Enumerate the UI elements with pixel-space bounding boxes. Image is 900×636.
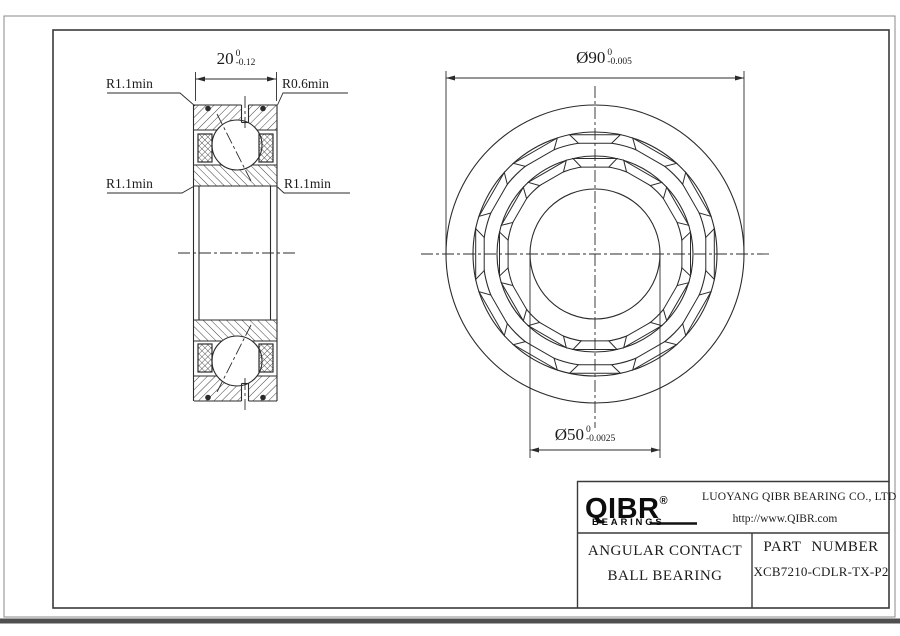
leader-top-left <box>107 93 195 106</box>
seal-dot-top-left <box>205 106 211 112</box>
company-website: http://www.QIBR.com <box>702 513 868 525</box>
product-type-line2: BALL BEARING <box>578 568 752 585</box>
width-dimension-lines <box>196 72 277 101</box>
arrowhead <box>267 77 276 82</box>
logo-subtext: BEARINGS <box>592 517 665 528</box>
tol-lower: -0.005 <box>607 58 632 67</box>
cage-pocket <box>479 172 507 216</box>
dim-bore-diameter: Ø50 0 -0.0025 <box>535 426 635 444</box>
bearing-drawing-page: { "drawing": { "dimensions": { "width": … <box>0 0 900 636</box>
cage-pocket <box>624 160 662 185</box>
dim-width-value: 20 <box>217 50 234 67</box>
arrowhead <box>446 76 455 81</box>
seal-dot-top-right <box>260 106 266 112</box>
outer-frame <box>4 16 895 617</box>
leader-top-right <box>278 93 349 105</box>
cage-pocket <box>513 342 557 370</box>
dim-bore-tolerance: 0 -0.0025 <box>586 426 615 444</box>
cage-pocket <box>683 292 711 336</box>
part-number-value: XCB7210-CDLR-TX-P2 <box>750 564 892 580</box>
drawing-frames <box>0 16 900 621</box>
company-name: LUOYANG QIBR BEARING CO., LTD <box>702 491 878 503</box>
radius-label-top-right: R0.6min <box>282 77 329 91</box>
arrowhead <box>735 76 744 81</box>
cage-pocket <box>663 187 688 225</box>
dim-od-value: Ø90 <box>576 49 605 66</box>
arrowhead <box>196 77 205 82</box>
cage-pocket <box>683 172 711 216</box>
seal-dot-bottom-right <box>260 395 266 401</box>
radius-label-mid-left: R1.1min <box>106 177 153 191</box>
cage-pocket <box>528 160 566 185</box>
dim-bore-value: Ø50 <box>555 426 584 443</box>
seal-dot-bottom-left <box>205 395 211 401</box>
cage-pocket <box>633 342 677 370</box>
cage-pocket <box>663 283 688 321</box>
cross-section-view <box>107 72 350 410</box>
ball-top <box>212 120 262 170</box>
radius-label-top-left: R1.1min <box>106 77 153 91</box>
ball-bottom <box>212 336 262 386</box>
dim-od-tolerance: 0 -0.005 <box>607 49 632 67</box>
registered-mark: ® <box>660 495 668 507</box>
cage-pocket <box>501 187 526 225</box>
cage-pocket <box>501 283 526 321</box>
cage-pocket <box>479 292 507 336</box>
cage-pocket <box>528 322 566 347</box>
arrowhead <box>530 448 539 453</box>
tol-lower: -0.12 <box>236 59 256 68</box>
dim-width-tolerance: 0 -0.12 <box>236 50 256 68</box>
product-type-line1: ANGULAR CONTACT <box>578 543 752 560</box>
cage-pocket <box>513 138 557 166</box>
front-view <box>421 71 769 458</box>
arrowhead <box>651 448 660 453</box>
dim-outer-diameter: Ø90 0 -0.005 <box>554 49 654 67</box>
radius-label-mid-right: R1.1min <box>284 177 331 191</box>
part-number-label: PART NUMBER <box>753 539 889 556</box>
tol-lower: -0.0025 <box>586 435 615 444</box>
dim-width: 20 0 -0.12 <box>186 50 286 68</box>
cage-pocket <box>633 138 677 166</box>
cage-pocket <box>624 322 662 347</box>
